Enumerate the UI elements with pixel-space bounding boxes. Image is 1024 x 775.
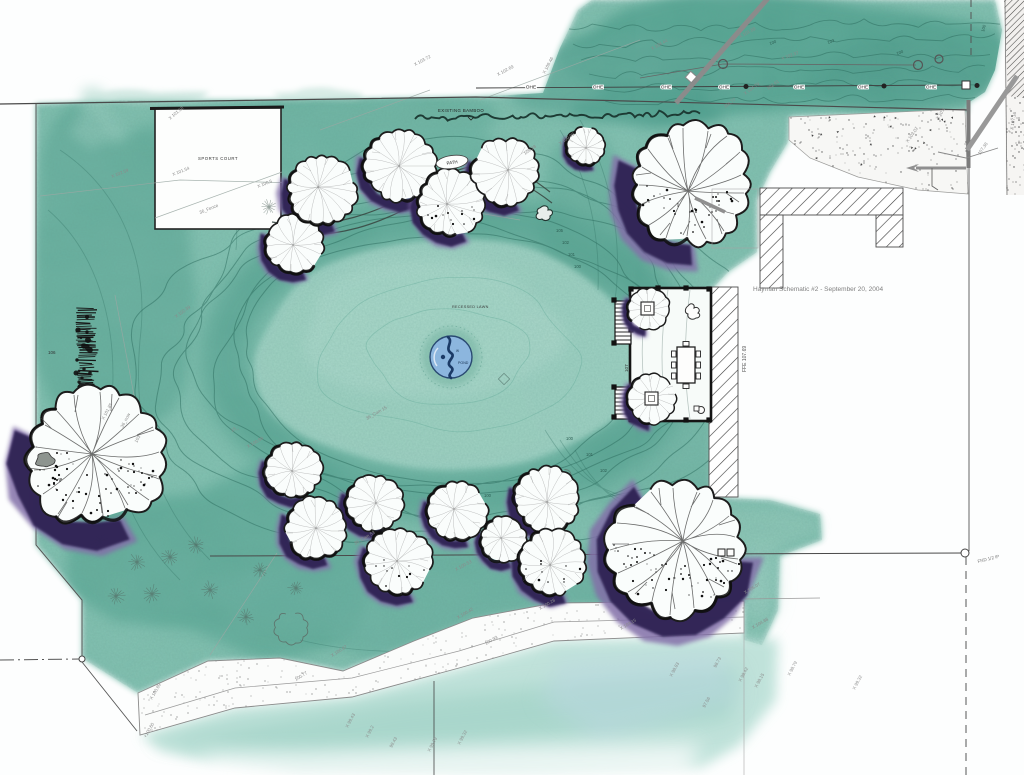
svg-text:100: 100 <box>574 264 582 269</box>
svg-text:102: 102 <box>562 240 570 245</box>
svg-text:OHE: OHE <box>794 85 804 91</box>
svg-text:OHE: OHE <box>593 85 603 91</box>
svg-text:FFE 107.69: FFE 107.69 <box>742 346 748 372</box>
svg-text:POND: POND <box>458 361 469 365</box>
svg-text:100: 100 <box>566 436 574 441</box>
svg-text:101: 101 <box>568 252 576 257</box>
svg-text:106: 106 <box>48 350 56 355</box>
svg-text:W: W <box>456 349 459 353</box>
svg-text:102: 102 <box>600 468 608 473</box>
svg-text:OHE: OHE <box>526 85 536 91</box>
svg-text:RECESSED LAWN: RECESSED LAWN <box>452 305 489 309</box>
svg-text:100: 100 <box>484 493 492 498</box>
svg-text:OHE: OHE <box>926 85 936 91</box>
svg-text:Hayman Schematic #2 - Sep: Hayman Schematic #2 - September 20, 2004 <box>753 286 883 293</box>
svg-text:101: 101 <box>586 452 594 457</box>
svg-text:OHE: OHE <box>661 85 671 91</box>
svg-text:SPORTS COURT: SPORTS COURT <box>198 156 238 161</box>
svg-text:OHE: OHE <box>858 85 868 91</box>
svg-text:OHE: OHE <box>719 85 729 91</box>
svg-text:107: 107 <box>624 364 629 372</box>
svg-text:105: 105 <box>556 228 564 233</box>
svg-text:EXISTING BAMBOO: EXISTING BAMBOO <box>438 108 484 113</box>
